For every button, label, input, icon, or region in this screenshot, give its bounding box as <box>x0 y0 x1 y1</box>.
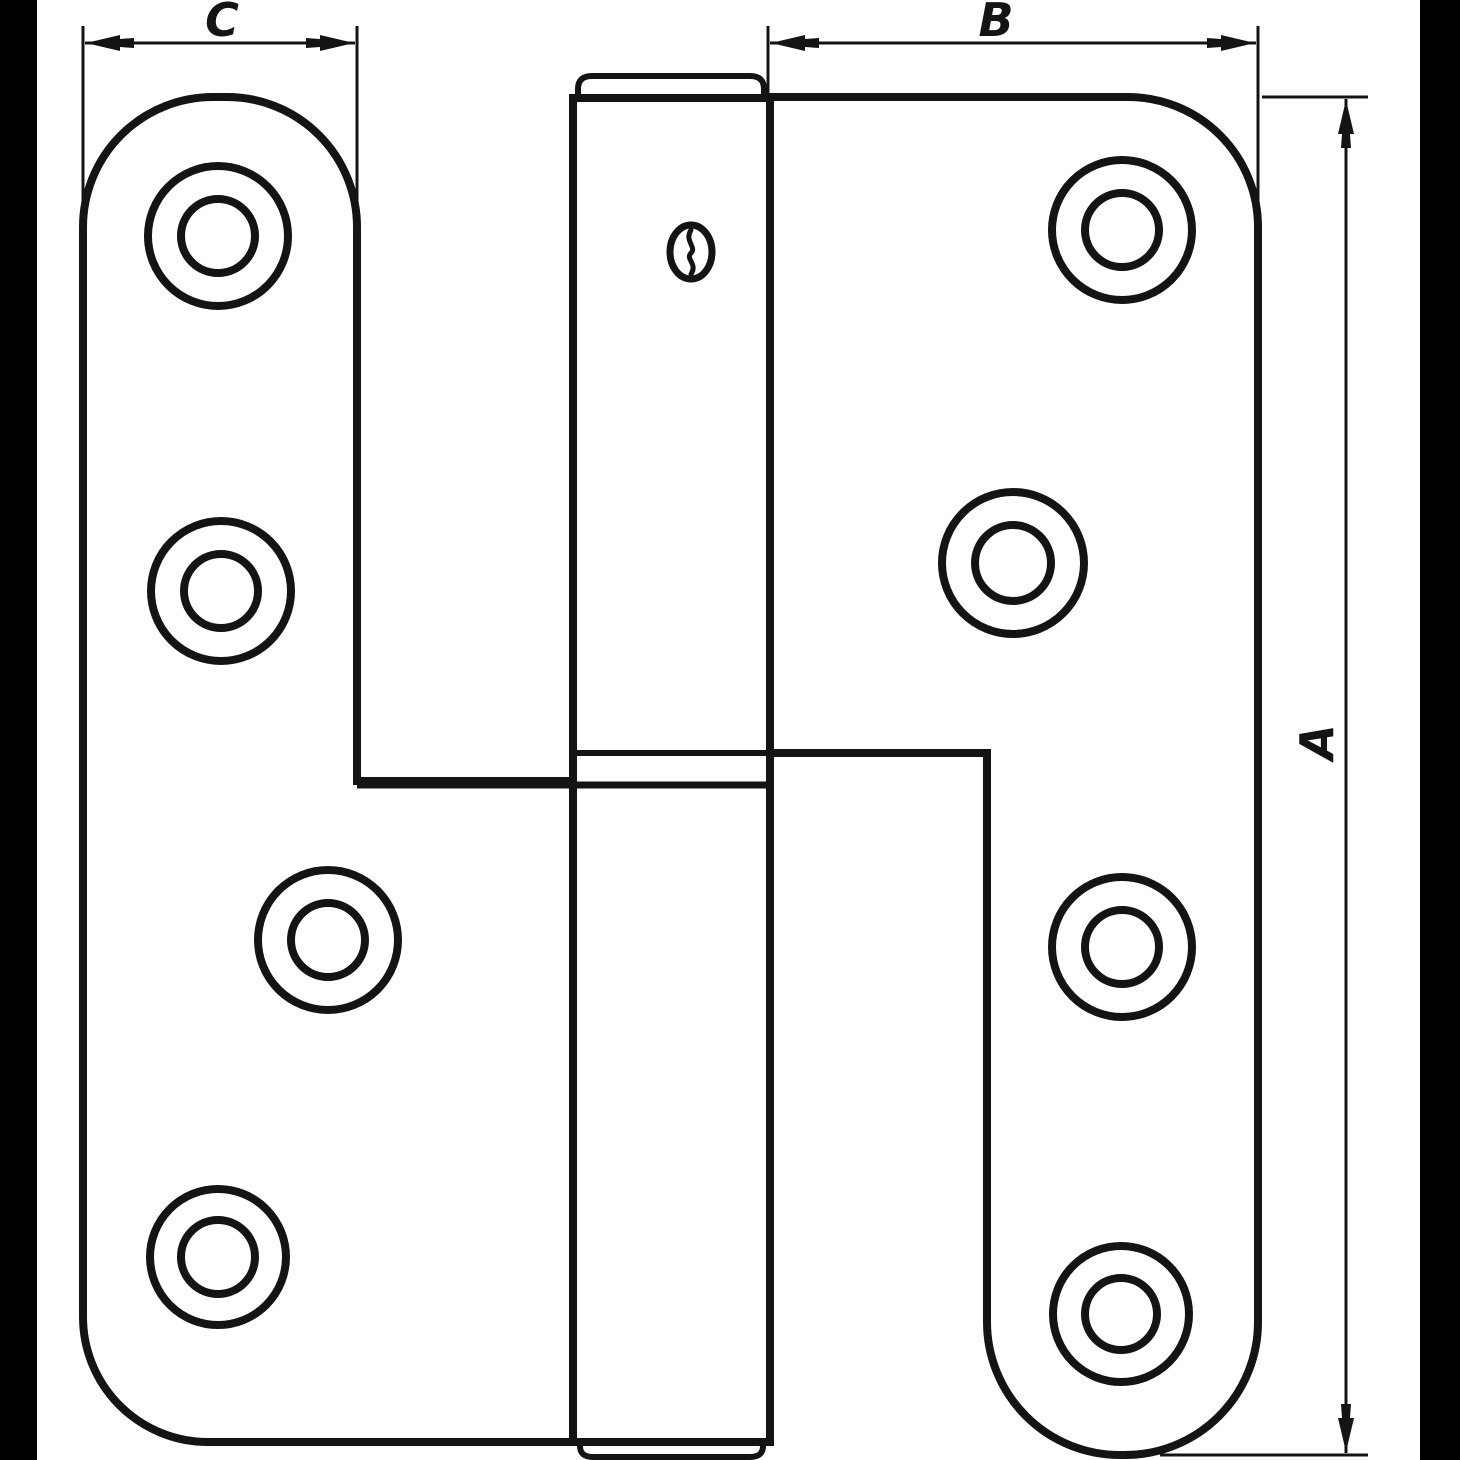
screw-hole-inner <box>1085 910 1159 984</box>
b-arrowhead-right-icon <box>1207 35 1255 51</box>
screw-hole-inner <box>181 1220 255 1294</box>
left-black-bar <box>0 0 37 1460</box>
dimension-a: A <box>1160 97 1368 1455</box>
screw-hole-outer <box>1052 877 1192 1017</box>
right-leaf-outline <box>770 97 1258 1455</box>
dimension-label-a: A <box>1290 724 1344 763</box>
hinge-barrel <box>573 98 770 1442</box>
screw-hole-outer <box>1052 160 1192 300</box>
screw-hole-outer <box>1053 1246 1189 1382</box>
hinge-technical-drawing: C B A <box>0 0 1460 1460</box>
dimension-c: C <box>83 0 357 220</box>
right-leaf-screw-holes <box>942 160 1192 1382</box>
screw-hole-outer <box>151 521 291 661</box>
c-arrowhead-left-icon <box>86 35 134 51</box>
left-leaf-outline <box>83 97 573 1442</box>
a-arrowhead-top-icon <box>1338 100 1354 148</box>
dimension-label-c: C <box>205 0 239 47</box>
screw-hole-inner <box>1085 1278 1157 1350</box>
screw-hole-outer <box>148 166 288 306</box>
barrel-oil-hole-slot <box>689 230 693 274</box>
right-black-bar <box>1420 0 1460 1460</box>
b-arrowhead-left-icon <box>771 35 819 51</box>
screw-hole-outer <box>942 492 1084 634</box>
drawing-canvas: C B A <box>0 0 1460 1460</box>
a-arrowhead-bottom-icon <box>1338 1404 1354 1452</box>
screw-hole-inner <box>1085 193 1159 267</box>
screw-hole-outer <box>258 870 398 1010</box>
screw-hole-inner <box>184 554 258 628</box>
dimension-label-b: B <box>978 0 1013 47</box>
screw-hole-outer <box>150 1189 286 1325</box>
screw-hole-inner <box>291 903 365 977</box>
screw-hole-inner <box>181 199 255 273</box>
screw-hole-inner <box>975 525 1051 601</box>
c-arrowhead-right-icon <box>306 35 354 51</box>
